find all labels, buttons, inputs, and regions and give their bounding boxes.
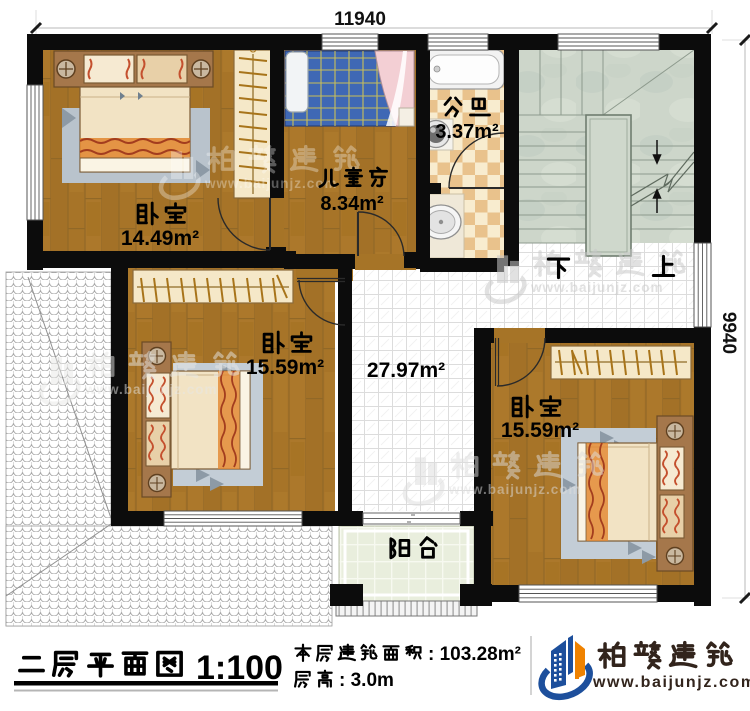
svg-text:www.baijunjz.com: www.baijunjz.com: [84, 382, 218, 397]
svg-text:3.37m²: 3.37m²: [435, 121, 499, 143]
svg-text:: 3.0m: : 3.0m: [339, 670, 394, 691]
svg-text:www.baijunjz.com: www.baijunjz.com: [592, 674, 750, 691]
svg-text:15.59m²: 15.59m²: [246, 356, 324, 379]
svg-text:www.baijunjz.com: www.baijunjz.com: [530, 280, 664, 295]
svg-text:: 103.28m²: : 103.28m²: [428, 644, 521, 665]
svg-text:11940: 11940: [334, 9, 386, 30]
svg-text:15.59m²: 15.59m²: [501, 419, 579, 442]
svg-text:27.97m²: 27.97m²: [367, 359, 445, 382]
svg-text:www.baijunjz.com: www.baijunjz.com: [204, 176, 338, 191]
svg-text:14.49m²: 14.49m²: [121, 227, 199, 250]
svg-text:www.baijunjz.com: www.baijunjz.com: [448, 482, 582, 497]
svg-text:9940: 9940: [718, 312, 739, 354]
svg-text:8.34m²: 8.34m²: [320, 193, 384, 215]
